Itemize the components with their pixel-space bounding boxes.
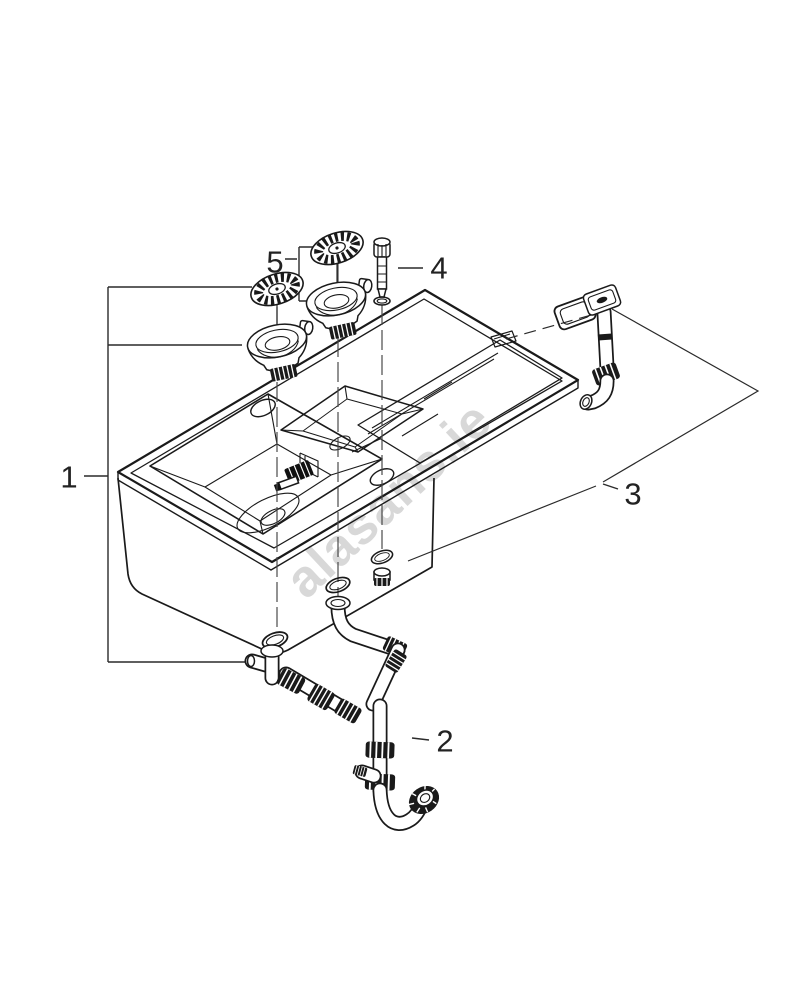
strainer-basket-left — [244, 317, 324, 385]
mounting-screw — [374, 238, 390, 305]
overflow-assembly — [553, 284, 622, 411]
mounting-clip — [274, 453, 318, 492]
overflow-slot — [491, 331, 516, 347]
callout-3: 3 — [624, 479, 641, 510]
callout-1: 1 — [60, 462, 77, 493]
overflow-zone-outline — [408, 309, 758, 561]
small-bowl — [281, 386, 423, 453]
oring-screw-fitting — [370, 548, 395, 567]
trap-spigot — [352, 765, 374, 777]
exploded-parts-diagram: alasans.ie — [0, 0, 792, 1000]
leader-3 — [603, 484, 618, 489]
drainer-board — [352, 340, 562, 463]
screw-fitting — [374, 568, 390, 586]
leader-2 — [412, 738, 429, 740]
strainer-set — [244, 225, 383, 385]
tap-hole — [248, 396, 278, 421]
trap-tee — [248, 645, 284, 678]
sink-parts-drawing — [0, 0, 792, 1000]
sink-body — [118, 478, 434, 653]
callout-4: 4 — [430, 253, 447, 284]
strainer-basket-middle — [303, 275, 383, 343]
oring-middle-drain — [324, 575, 352, 596]
big-bowl-drain-hole — [258, 505, 287, 528]
callout-5: 5 — [266, 247, 283, 278]
drain-trap-assembly — [248, 597, 445, 824]
callout-2: 2 — [436, 726, 453, 757]
middle-drain-flange — [326, 597, 350, 610]
strainer-cap-middle — [307, 225, 368, 270]
